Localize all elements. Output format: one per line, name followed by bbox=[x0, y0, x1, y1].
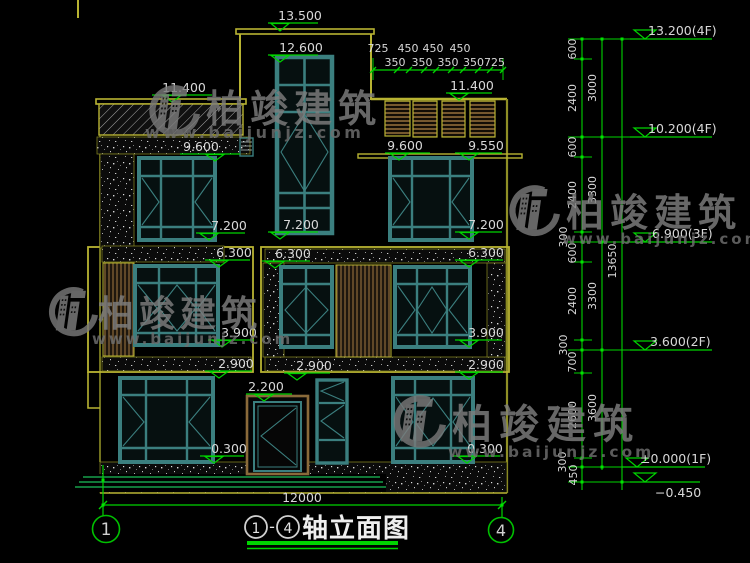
window-3f-left bbox=[139, 158, 215, 240]
level-label: 11.400 bbox=[450, 78, 494, 93]
window-2f-middle-right bbox=[395, 267, 470, 347]
window-1f-left bbox=[120, 378, 213, 462]
chain-dim: 700 bbox=[566, 352, 579, 373]
level-label: 13.500 bbox=[278, 8, 322, 23]
elevation-level: −0.450 bbox=[655, 485, 701, 500]
watermark-url: www.baijunjz.com bbox=[562, 230, 750, 248]
level-label: 3.900 bbox=[468, 325, 504, 340]
chain-total-dim: 13650 bbox=[606, 244, 619, 279]
level-label: 2.900 bbox=[218, 356, 254, 371]
level-label: 7.200 bbox=[468, 217, 504, 232]
watermark-url: www.baijunjz.com bbox=[448, 443, 654, 461]
louver-middle bbox=[336, 265, 391, 357]
watermark-url: www.baijunjz.com bbox=[145, 123, 364, 142]
title-axis-4: 4 bbox=[284, 521, 293, 537]
level-label: 9.550 bbox=[468, 138, 504, 153]
entrance-door bbox=[247, 396, 308, 474]
chain-dim: 600 bbox=[566, 39, 579, 60]
elevation-canvas: 13.500 12.600 11.400 11.400 9.600 9.600 … bbox=[0, 0, 750, 563]
title-text: 轴立面图 bbox=[302, 513, 410, 544]
title-dash: - bbox=[269, 517, 275, 536]
top-dimension-chain: 725 450 450 450 350 350 350 350725 bbox=[368, 42, 507, 80]
elevation-level: 13.200(4F) bbox=[648, 23, 717, 38]
axis-number: 1 bbox=[101, 520, 112, 540]
entrance-steps bbox=[75, 474, 386, 492]
watermark-cn: 柏竣建筑 bbox=[98, 294, 262, 335]
pier-left-3f bbox=[100, 154, 134, 248]
dim-label: 725 bbox=[368, 42, 389, 55]
level-label: 2.900 bbox=[296, 358, 332, 373]
level-label: 6.300 bbox=[468, 245, 504, 260]
tower-roof-slab bbox=[236, 29, 374, 34]
level-label: 9.600 bbox=[387, 138, 423, 153]
title-axis-1: 1 bbox=[252, 521, 261, 537]
level-label: 6.300 bbox=[275, 246, 311, 261]
level-label: 0.300 bbox=[211, 441, 247, 456]
parapet-post bbox=[442, 101, 465, 137]
window-tower-stair bbox=[277, 57, 332, 233]
chain-dim: 3300 bbox=[586, 282, 599, 310]
level-label: 7.200 bbox=[211, 218, 247, 233]
window-3f-right bbox=[390, 158, 472, 240]
top-dim-texts: 725 450 450 450 350 350 350 350725 bbox=[368, 42, 506, 69]
watermark-cn: 柏竣建筑 bbox=[452, 402, 640, 448]
dim-label: 350 bbox=[412, 56, 433, 69]
watermark-url: www.baijunjz.com bbox=[92, 330, 293, 348]
level-label: 12.600 bbox=[279, 40, 323, 55]
dim-label: 350 bbox=[385, 56, 406, 69]
chain-dim: 3000 bbox=[586, 74, 599, 102]
elevation-level: 10.200(4F) bbox=[648, 121, 717, 136]
level-label: 7.200 bbox=[283, 217, 319, 232]
axis-number: 4 bbox=[496, 521, 506, 540]
chain-dim: 2400 bbox=[566, 287, 579, 315]
watermark-2: 柏竣建筑 www.baijunjz.com bbox=[512, 188, 750, 248]
level-label: 6.300 bbox=[216, 245, 252, 260]
dim-label: 350 bbox=[438, 56, 459, 69]
watermark-logo bbox=[512, 188, 556, 233]
chain-dim: 450 bbox=[567, 465, 580, 486]
window-1f-narrow bbox=[317, 380, 347, 463]
chain-level-texts: 13.200(4F) 10.200(4F) 6.900(3F) 3.600(2F… bbox=[640, 23, 717, 500]
level-label: 2.200 bbox=[248, 379, 284, 394]
drawing-title: 1 - 4 轴立面图 bbox=[245, 513, 410, 549]
elevation-level: 3.600(2F) bbox=[650, 334, 711, 349]
watermark-cn: 柏竣建筑 bbox=[566, 191, 742, 235]
chain-dim: 2400 bbox=[566, 84, 579, 112]
dim-label: 450 bbox=[450, 42, 471, 55]
axis-bubble-1: 1 bbox=[93, 516, 120, 543]
cad-elevation-drawing: 13.500 12.600 11.400 11.400 9.600 9.600 … bbox=[0, 0, 750, 563]
level-label: 2.900 bbox=[468, 357, 504, 372]
parapet-post bbox=[470, 101, 495, 137]
parapet-post bbox=[385, 101, 410, 136]
parapet-post bbox=[413, 101, 437, 137]
dim-label: 450 bbox=[423, 42, 444, 55]
dim-label: 350725 bbox=[463, 56, 505, 69]
chain-dim: 600 bbox=[566, 137, 579, 158]
axis-bubble-4: 4 bbox=[489, 518, 514, 543]
dim-label: 450 bbox=[398, 42, 419, 55]
overall-width-dim: 12000 bbox=[282, 490, 322, 505]
balcony-box-left-lip bbox=[88, 372, 100, 408]
pier-middle-right bbox=[487, 263, 506, 357]
